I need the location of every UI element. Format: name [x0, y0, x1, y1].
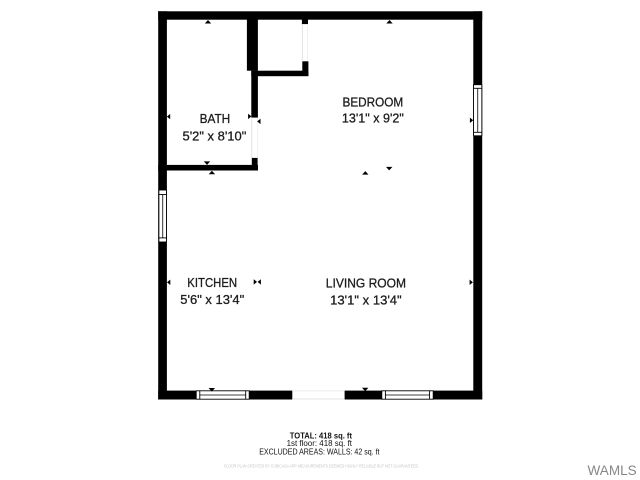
- svg-text:EXCLUDED AREAS: WALLS: 42 sq.: EXCLUDED AREAS: WALLS: 42 sq. ft: [259, 447, 380, 457]
- svg-text:LIVING ROOM: LIVING ROOM: [326, 276, 406, 290]
- svg-text:WAMLS: WAMLS: [588, 463, 637, 478]
- svg-text:BATH: BATH: [200, 112, 231, 126]
- svg-text:5'2" x 8'10": 5'2" x 8'10": [183, 129, 247, 143]
- svg-text:BEDROOM: BEDROOM: [343, 95, 404, 109]
- svg-text:FLOOR PLAN CREATED BY CUBICASA: FLOOR PLAN CREATED BY CUBICASA APP. MEAS…: [224, 463, 419, 468]
- svg-text:5'6" x 13'4": 5'6" x 13'4": [180, 293, 244, 307]
- svg-text:13'1" x 9'2": 13'1" x 9'2": [342, 112, 404, 126]
- svg-text:13'1" x 13'4": 13'1" x 13'4": [330, 293, 402, 307]
- svg-text:KITCHEN: KITCHEN: [187, 276, 237, 290]
